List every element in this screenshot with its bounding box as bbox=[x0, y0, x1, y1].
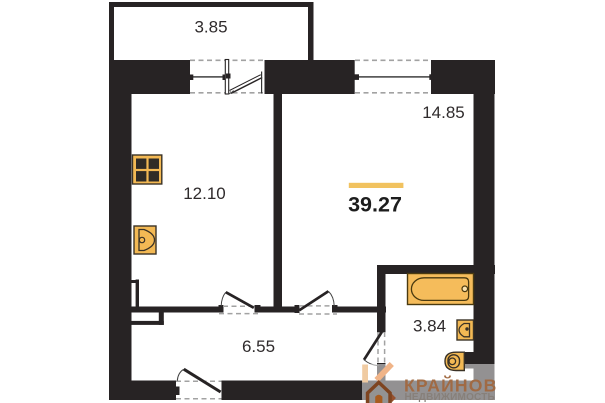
svg-text:НЕДВИЖИМОСТЬ: НЕДВИЖИМОСТЬ bbox=[405, 392, 495, 403]
svg-text:3.85: 3.85 bbox=[194, 18, 227, 37]
svg-text:39.27: 39.27 bbox=[348, 193, 402, 217]
svg-text:12.10: 12.10 bbox=[183, 184, 226, 203]
svg-text:6.55: 6.55 bbox=[242, 337, 275, 356]
svg-text:3.84: 3.84 bbox=[413, 317, 446, 336]
svg-text:14.85: 14.85 bbox=[422, 103, 465, 122]
